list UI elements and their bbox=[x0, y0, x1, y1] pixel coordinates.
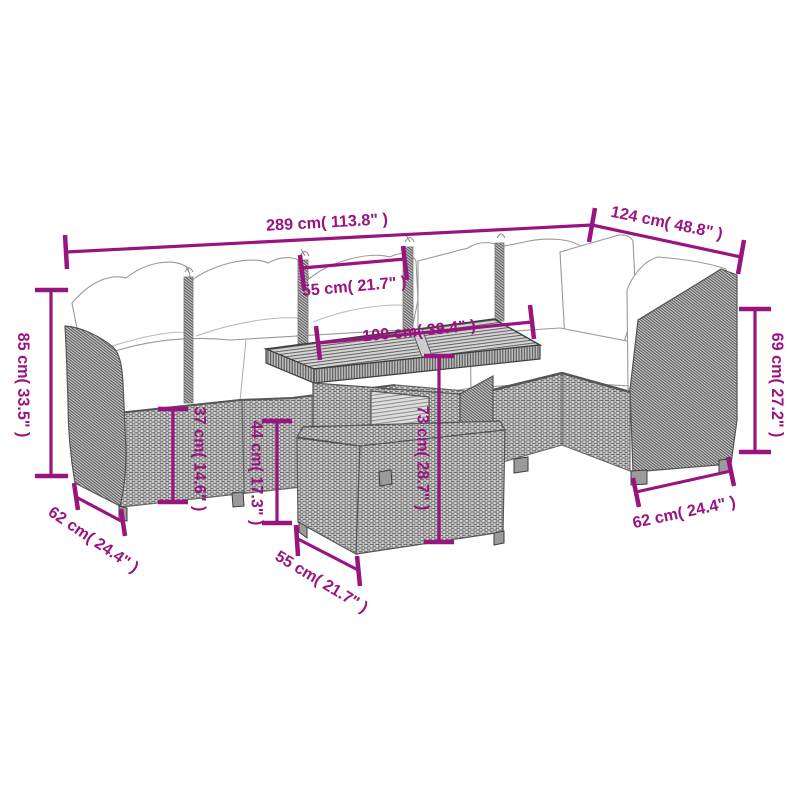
svg-text:44 cm( 17.3" ): 44 cm( 17.3" ) bbox=[248, 421, 266, 526]
svg-text:37 cm( 14.6" ): 37 cm( 14.6" ) bbox=[191, 407, 209, 512]
svg-text:85 cm( 33.5" ): 85 cm( 33.5" ) bbox=[14, 333, 32, 438]
svg-text:73 cm( 28.7" ): 73 cm( 28.7" ) bbox=[414, 406, 432, 511]
svg-text:69 cm( 27.2" ): 69 cm( 27.2" ) bbox=[768, 333, 786, 438]
